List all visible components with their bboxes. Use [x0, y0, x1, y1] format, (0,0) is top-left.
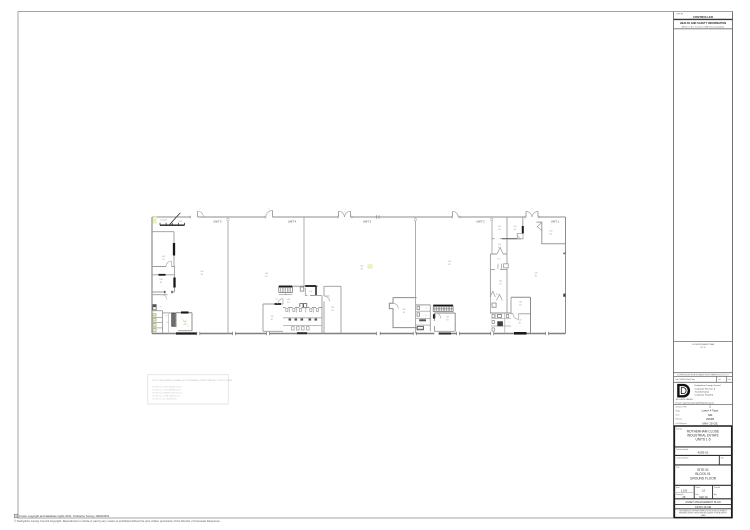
svg-text:1-1: 1-1: [268, 209, 270, 211]
svg-text:B1: B1: [448, 264, 451, 266]
svg-text:100: 100: [518, 320, 522, 322]
svg-text:4393-01: 4393-01: [697, 451, 708, 455]
svg-text:Date: Date: [728, 378, 731, 381]
svg-text:9: 9: [420, 323, 421, 325]
svg-text:COPY NO: COPY NO: [676, 14, 684, 16]
svg-text:Scheme: Scheme: [676, 428, 682, 430]
svg-text:© Derbyshire County Council Co: © Derbyshire County Council Copyright. R…: [14, 519, 220, 523]
svg-text:Last Reference: Last Reference: [676, 422, 688, 425]
svg-text:Derbyshire County Council: Derbyshire County Council: [695, 384, 722, 387]
svg-text:B1: B1: [265, 276, 268, 278]
svg-text:100: 100: [448, 261, 452, 263]
svg-text:10: 10: [425, 315, 427, 317]
svg-text:100: 100: [519, 302, 523, 304]
svg-text:DRAW: DRAW: [701, 514, 706, 517]
svg-text:Scale: Scale: [676, 487, 680, 489]
svg-text:ROOM 102 = STORE AREA 10.6m: ROOM 102 = STORE AREA 10.6m2: [152, 389, 181, 392]
svg-text:B1: B1: [162, 259, 165, 261]
svg-text:Units: Units: [676, 414, 680, 417]
svg-text:UNITS 1-5: UNITS 1-5: [695, 438, 710, 442]
svg-text:B1: B1: [446, 320, 449, 322]
svg-text:Checked: Checked: [714, 487, 720, 489]
svg-text:(Refer to the Transfer CDM Doc: (Refer to the Transfer CDM Documentation…: [682, 26, 725, 29]
svg-text:1-1: 1-1: [454, 209, 456, 211]
svg-text:100: 100: [513, 226, 517, 228]
svg-text:ROOM 101 = OFFICE AREA 14.2: ROOM 101 = OFFICE AREA 14.2m2: [152, 386, 181, 389]
svg-text:B1: B1: [499, 284, 502, 286]
svg-text:100: 100: [287, 299, 291, 301]
svg-text:100: 100: [183, 321, 187, 323]
svg-text:NOTE: THIS DRAWING IS BASED U: NOTE: THIS DRAWING IS BASED UPON ORDNANC…: [152, 379, 233, 382]
svg-text:File P:\4393-01\Site01.dwg: File P:\4393-01\Site01.dwg: [676, 378, 695, 381]
svg-text:Measure: Measure: [676, 418, 683, 421]
svg-text:THIS DRAWING IS COPYRIGHT. RE: THIS DRAWING IS COPYRIGHT. REPRODUCTION …: [679, 509, 727, 512]
svg-text:0 5 10m: 0 5 10m: [160, 220, 167, 222]
svg-text:1-1: 1-1: [199, 209, 201, 211]
svg-text:100: 100: [446, 317, 450, 319]
svg-text:Media: Media: [676, 410, 681, 412]
svg-text:100: 100: [331, 307, 335, 309]
svg-text:107: 107: [275, 299, 278, 301]
svg-text:B1: B1: [361, 269, 364, 271]
svg-text:Rev: Rev: [721, 457, 724, 459]
svg-text:B1: B1: [550, 233, 553, 235]
svg-text:100: 100: [549, 230, 553, 232]
svg-text:1:200: 1:200: [178, 221, 182, 223]
svg-text:B1: B1: [201, 274, 204, 276]
svg-text:Corporate Property: Corporate Property: [695, 394, 715, 397]
svg-text:LOCATION AND PLAN: LOCATION AND PLAN: [692, 343, 715, 346]
svg-text:App: App: [714, 493, 717, 496]
svg-text:ROOM 105 = WC AREA 4.8m2: ROOM 105 = WC AREA 4.8m2: [152, 398, 177, 401]
svg-text:Corporate Services &: Corporate Services &: [695, 387, 716, 390]
svg-text:ROOM 104 = LOBBY AREA 6.2m2: ROOM 104 = LOBBY AREA 6.2m2: [152, 395, 180, 398]
svg-text:20MM: 20MM: [706, 417, 715, 421]
svg-text:100: 100: [162, 256, 166, 258]
svg-text:100: 100: [534, 273, 538, 275]
svg-text:1:100: 1:100: [681, 490, 688, 493]
svg-text:100: 100: [270, 316, 274, 318]
svg-text:GROUND FLOOR: GROUND FLOOR: [690, 476, 717, 480]
svg-text:UNIT 2: UNIT 2: [476, 220, 485, 224]
svg-text:Scheme Number: Scheme Number: [676, 449, 688, 451]
svg-text:Last: Last: [718, 378, 721, 381]
svg-text:11: 11: [425, 308, 427, 310]
svg-text:1-1: 1-1: [531, 209, 533, 211]
svg-text:116: 116: [496, 294, 499, 296]
svg-text:CONTROLLED: CONTROLLED: [693, 15, 713, 19]
svg-text:UNIT 5: UNIT 5: [213, 220, 222, 224]
svg-text:(C) REPRODUCED FROM ORDNANCE S: (C) REPRODUCED FROM ORDNANCE SURVEY MAPP…: [677, 373, 729, 376]
svg-text:B1: B1: [403, 312, 406, 314]
svg-text:1-1: 1-1: [343, 209, 345, 211]
svg-text:ROOM 103 = WAREHOUSE 262.4m: ROOM 103 = WAREHOUSE 262.4m2: [152, 392, 182, 395]
svg-text:B1: B1: [519, 305, 522, 307]
svg-text:100: 100: [498, 244, 502, 246]
svg-text:106: 106: [309, 291, 312, 293]
svg-text:100: 100: [402, 309, 406, 311]
svg-text:100: 100: [200, 271, 204, 273]
svg-text:B1: B1: [498, 229, 501, 231]
svg-text:ASSET MANAGEMENT PLAN: ASSET MANAGEMENT PLAN: [685, 500, 720, 504]
svg-text:Title: Title: [676, 466, 679, 469]
svg-text:N T S: N T S: [700, 347, 706, 349]
svg-text:100: 100: [499, 281, 503, 283]
svg-text:100: 100: [360, 266, 364, 268]
svg-text:Drawn: Drawn: [696, 486, 701, 489]
svg-text:B1: B1: [160, 282, 163, 284]
svg-text:UNIT 3: UNIT 3: [363, 220, 372, 224]
svg-text:B1: B1: [535, 276, 538, 278]
svg-text:HEALTH AND SAFETY INFORMATION: HEALTH AND SAFETY INFORMATION: [680, 21, 726, 25]
svg-text:Contract Number: Contract Number: [676, 456, 689, 459]
svg-text:100: 100: [498, 226, 502, 228]
svg-text:Tel: 01629 580000: Tel: 01629 580000: [676, 399, 694, 401]
svg-text:WC: WC: [160, 307, 164, 309]
svg-text:Transformation: Transformation: [695, 390, 710, 393]
svg-text:C: C: [15, 515, 17, 518]
svg-text:Crown copyright and database r: Crown copyright and database rights 2011…: [19, 514, 110, 518]
svg-text:B1: B1: [287, 302, 290, 304]
svg-text:8: 8: [509, 322, 510, 324]
svg-text:B1: B1: [331, 310, 334, 312]
svg-text:B1: B1: [519, 323, 522, 325]
svg-text:113: 113: [497, 259, 501, 261]
svg-text:CF370 15-AM: CF370 15-AM: [695, 505, 711, 509]
svg-text:B1: B1: [514, 229, 517, 231]
svg-text:100: 100: [265, 273, 269, 275]
svg-text:UNIT 4: UNIT 4: [288, 220, 297, 224]
svg-text:LS: LS: [702, 490, 705, 493]
svg-text:B1: B1: [271, 319, 274, 321]
svg-text:100: 100: [159, 279, 163, 281]
svg-text:MAY 19 GE: MAY 19 GE: [703, 422, 718, 426]
svg-text:UNIT 1: UNIT 1: [551, 220, 560, 224]
svg-text:Revision / PMI: Revision / PMI: [676, 406, 687, 408]
